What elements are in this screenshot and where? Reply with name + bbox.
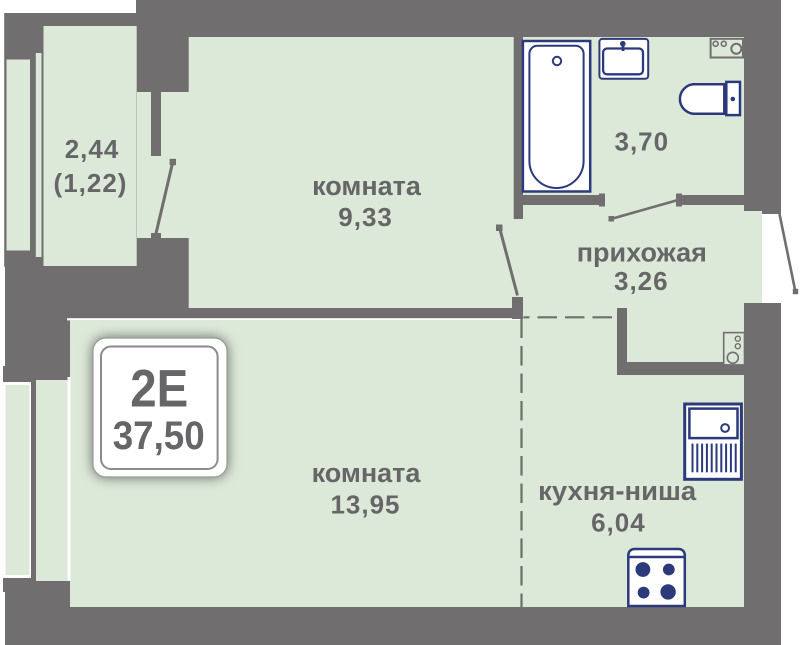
svg-text:прихожая: прихожая xyxy=(577,238,707,268)
svg-text:2,44: 2,44 xyxy=(65,134,120,164)
svg-text:комната: комната xyxy=(312,171,422,201)
svg-text:37,50: 37,50 xyxy=(113,414,205,458)
svg-text:9,33: 9,33 xyxy=(338,202,393,232)
svg-text:кухня-ниша: кухня-ниша xyxy=(538,476,697,506)
svg-text:2Е: 2Е xyxy=(130,360,188,419)
svg-text:3,70: 3,70 xyxy=(614,127,669,157)
svg-text:13,95: 13,95 xyxy=(330,490,400,520)
svg-text:комната: комната xyxy=(312,458,422,488)
svg-text:6,04: 6,04 xyxy=(591,507,646,537)
svg-text:3,26: 3,26 xyxy=(614,266,669,296)
svg-text:(1,22): (1,22) xyxy=(54,168,128,198)
